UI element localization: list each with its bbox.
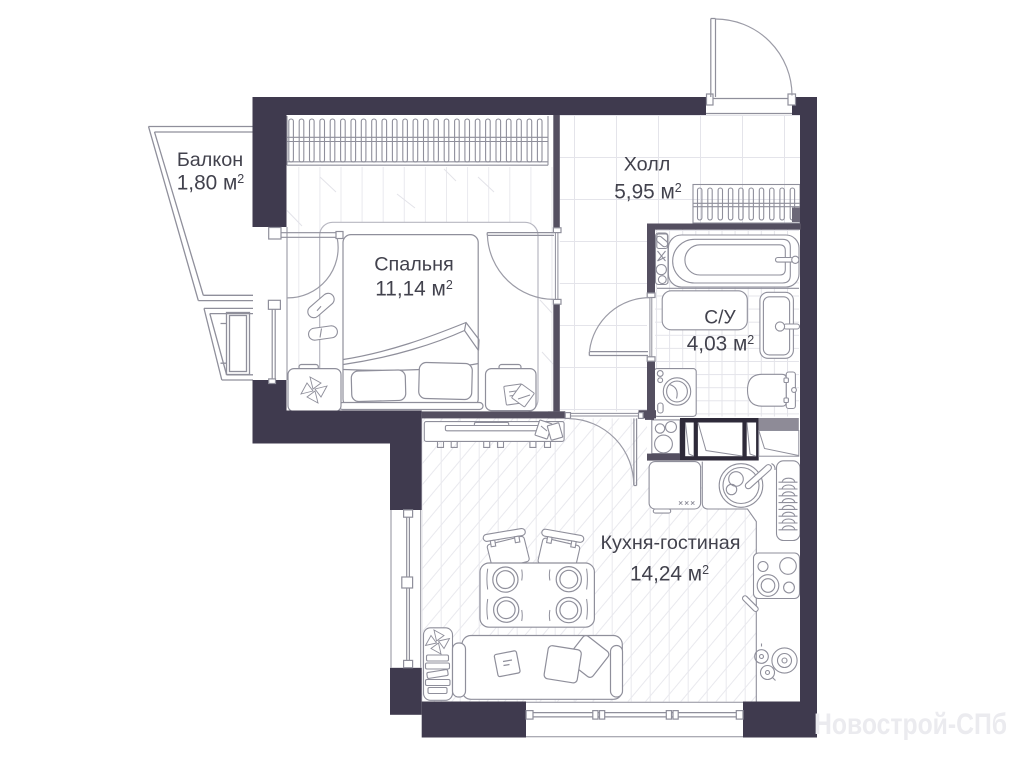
svg-text:14,24 м2: 14,24 м2 — [630, 563, 709, 586]
svg-text:С/У: С/У — [704, 308, 736, 329]
svg-text:Новострой-СПб: Новострой-СПб — [814, 708, 1007, 741]
svg-text:Спальня: Спальня — [374, 254, 453, 276]
svg-text:11,14 м2: 11,14 м2 — [375, 278, 453, 301]
svg-text:Кухня-гостиная: Кухня-гостиная — [601, 532, 741, 554]
svg-text:Холл: Холл — [624, 154, 671, 176]
svg-text:5,95 м2: 5,95 м2 — [614, 181, 682, 204]
svg-text:Балкон: Балкон — [177, 149, 243, 171]
svg-text:4,03 м2: 4,03 м2 — [687, 333, 755, 356]
svg-text:1,80 м2: 1,80 м2 — [177, 172, 245, 195]
